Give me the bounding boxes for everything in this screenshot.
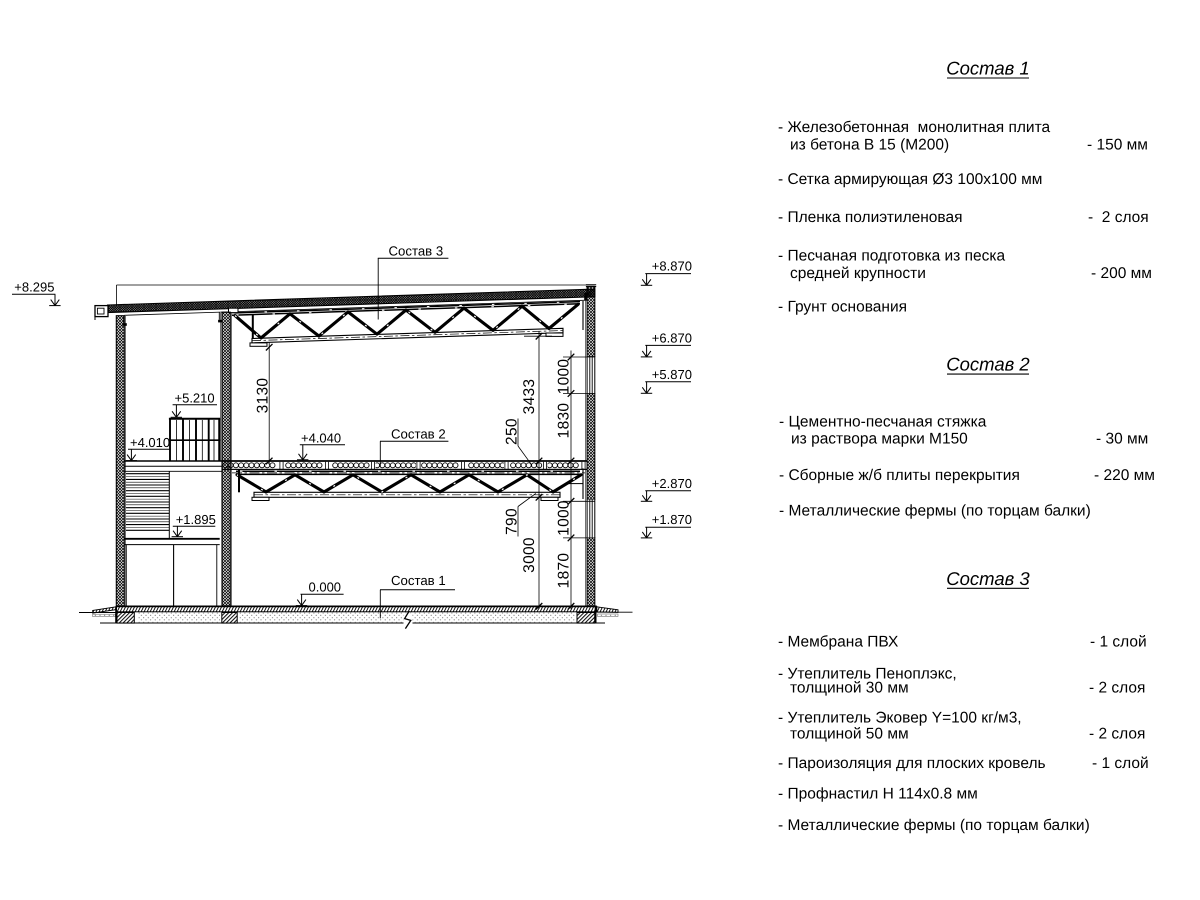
svg-text:Состав 1: Состав 1	[946, 58, 1029, 79]
svg-text:1830: 1830	[555, 403, 572, 439]
svg-text:- 200 мм: - 200 мм	[1091, 265, 1152, 282]
svg-text:- Металлические фермы (по торц: - Металлические фермы (по торцам балки)	[779, 503, 1091, 520]
svg-text:- Профнастил Н 114х0.8 мм: - Профнастил Н 114х0.8 мм	[778, 786, 978, 803]
svg-text:толщиной 50 мм: толщиной 50 мм	[790, 726, 909, 743]
svg-text:+8.870: +8.870	[652, 259, 692, 274]
svg-text:+5.870: +5.870	[652, 367, 692, 382]
svg-text:- Пароизоляция для плоских кро: - Пароизоляция для плоских кровель	[778, 755, 1046, 772]
svg-text:- Сборные ж/б плиты перекрытия: - Сборные ж/б плиты перекрытия	[779, 467, 1020, 484]
svg-text:3000: 3000	[521, 537, 538, 573]
svg-text:1000: 1000	[555, 500, 572, 536]
svg-text:0.000: 0.000	[309, 579, 342, 594]
svg-text:- 30 мм: - 30 мм	[1096, 431, 1148, 448]
svg-text:1000: 1000	[555, 359, 572, 395]
svg-text:- 1 слой: - 1 слой	[1092, 755, 1149, 772]
svg-text:- 150 мм: - 150 мм	[1087, 136, 1148, 153]
svg-text:+1.895: +1.895	[176, 512, 216, 527]
svg-text:+4.010: +4.010	[130, 435, 170, 450]
svg-text:+1.870: +1.870	[652, 512, 692, 527]
svg-text:- 220 мм: - 220 мм	[1094, 467, 1155, 484]
svg-text:250: 250	[504, 418, 521, 445]
svg-text:средней крупности: средней крупности	[790, 265, 926, 282]
svg-text:1870: 1870	[555, 553, 572, 589]
svg-text:+5.210: +5.210	[175, 391, 215, 406]
svg-text:из раствора марки М150: из раствора марки М150	[791, 431, 968, 448]
svg-text:3433: 3433	[521, 379, 538, 415]
svg-text:- 1 слой: - 1 слой	[1090, 634, 1147, 651]
svg-text:+6.870: +6.870	[652, 330, 692, 345]
svg-text:+2.870: +2.870	[652, 476, 692, 491]
svg-text:Состав 3: Состав 3	[389, 243, 444, 258]
svg-text:+8.295: +8.295	[14, 280, 54, 295]
svg-text:Состав 2: Состав 2	[391, 426, 446, 441]
svg-text:- Песчаная подготовка из песка: - Песчаная подготовка из песка	[778, 248, 1005, 265]
svg-text:- 2 слоя: - 2 слоя	[1089, 726, 1145, 743]
svg-text:790: 790	[504, 508, 521, 535]
svg-text:из бетона В 15 (М200): из бетона В 15 (М200)	[790, 136, 949, 153]
svg-text:Состав 3: Состав 3	[946, 568, 1030, 589]
svg-text:толщиной 30 мм: толщиной 30 мм	[790, 680, 909, 697]
svg-text:- Пленка полиэтиленовая: - Пленка полиэтиленовая	[778, 209, 963, 226]
svg-text:- Сетка армирующая Ø3 100х100: - Сетка армирующая Ø3 100х100 мм	[778, 171, 1042, 188]
svg-text:- Утеплитель Эковер Y=100 кг/м: - Утеплитель Эковер Y=100 кг/м3,	[778, 710, 1022, 727]
svg-text:- 2 слоя: - 2 слоя	[1088, 209, 1149, 226]
svg-text:- Металлические фермы (по торц: - Металлические фермы (по торцам балки)	[778, 817, 1090, 834]
svg-text:- Мембрана ПВХ: - Мембрана ПВХ	[778, 634, 899, 651]
svg-text:+4.040: +4.040	[301, 431, 341, 446]
svg-text:Состав 2: Состав 2	[946, 354, 1030, 375]
svg-text:- Грунт основания: - Грунт основания	[778, 299, 907, 316]
svg-text:- Цементно-песчаная стяжка: - Цементно-песчаная стяжка	[779, 413, 987, 430]
svg-text:3130: 3130	[254, 378, 271, 414]
svg-text:- 2 слоя: - 2 слоя	[1089, 680, 1145, 697]
svg-text:Состав 1: Состав 1	[391, 573, 446, 588]
svg-text:- Железобетонная монолитная п: - Железобетонная монолитная плита	[778, 119, 1050, 136]
